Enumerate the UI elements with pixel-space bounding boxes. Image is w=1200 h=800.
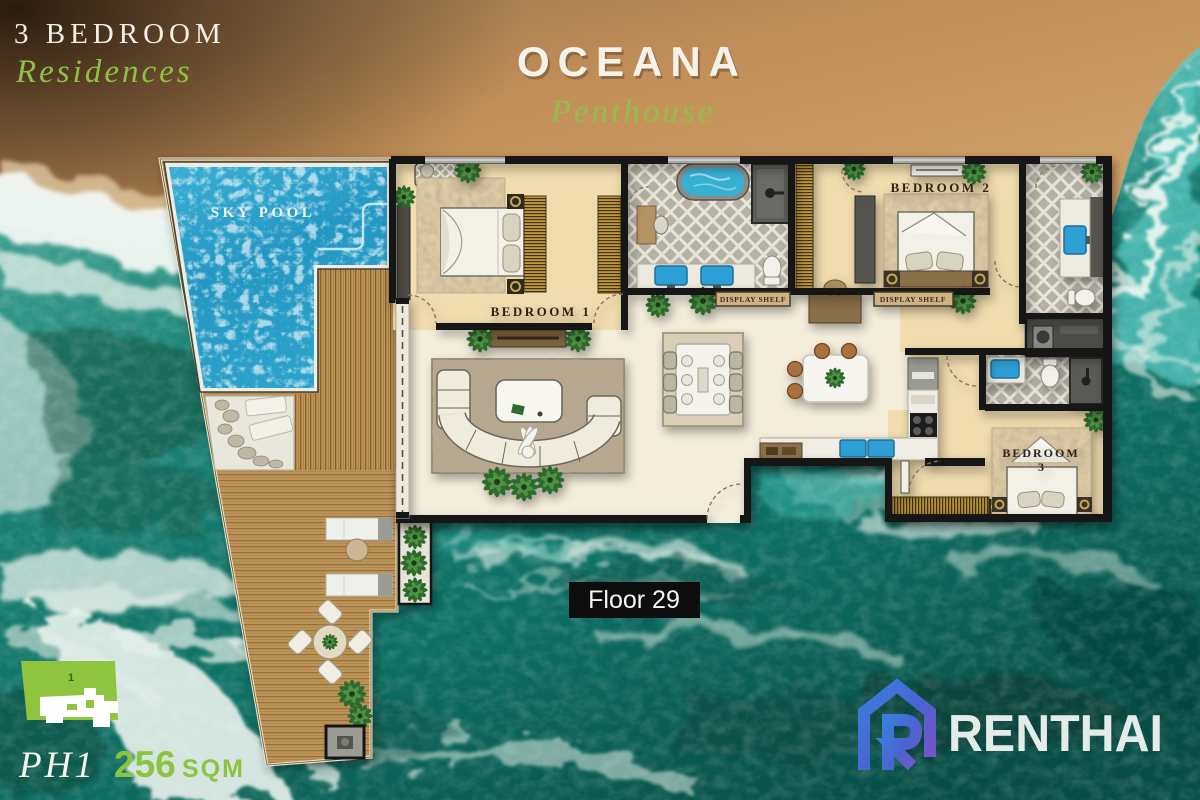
svg-text:SQM: SQM	[182, 755, 245, 783]
svg-text:3: 3	[1038, 460, 1044, 474]
svg-text:3 BEDROOM: 3 BEDROOM	[14, 18, 226, 50]
svg-text:PH1: PH1	[18, 745, 96, 786]
svg-text:BEDROOM 1: BEDROOM 1	[491, 304, 592, 319]
svg-text:BEDROOM: BEDROOM	[1002, 446, 1079, 460]
svg-text:DISPLAY SHELF: DISPLAY SHELF	[880, 295, 946, 304]
svg-text:Penthouse: Penthouse	[550, 94, 715, 130]
svg-text:OCEANA: OCEANA	[517, 38, 747, 85]
svg-text:BEDROOM 2: BEDROOM 2	[891, 180, 992, 195]
svg-text:SKY POOL: SKY POOL	[211, 205, 316, 221]
svg-text:Residences: Residences	[15, 54, 193, 90]
svg-text:1: 1	[68, 672, 74, 684]
svg-text:DISPLAY SHELF: DISPLAY SHELF	[720, 295, 786, 304]
svg-text:256: 256	[114, 744, 176, 785]
svg-text:RENTHAI: RENTHAI	[948, 705, 1163, 763]
svg-text:Floor 29: Floor 29	[588, 586, 680, 614]
